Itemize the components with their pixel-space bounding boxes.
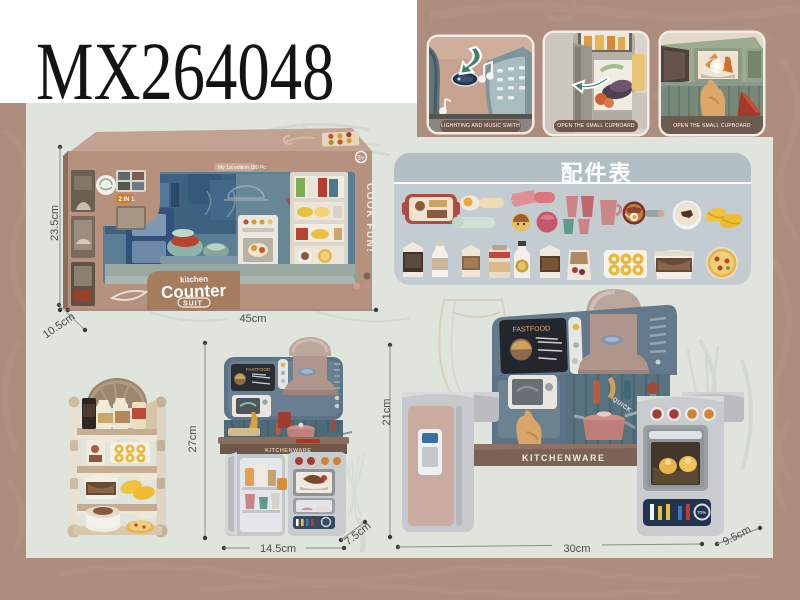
svg-text:KITCHENWARE: KITCHENWARE <box>522 453 606 463</box>
svg-text:FASTFOOD: FASTFOOD <box>512 325 550 333</box>
svg-text:3+: 3+ <box>357 155 365 162</box>
svg-text:FASTFOOD: FASTFOOD <box>246 367 271 372</box>
svg-text:My 1st edition 180 Pc: My 1st edition 180 Pc <box>218 165 266 171</box>
svg-text:2 IN 1: 2 IN 1 <box>119 197 136 203</box>
svg-text:COOK FUN!: COOK FUN! <box>364 183 375 253</box>
svg-text:70%: 70% <box>697 510 706 515</box>
svg-text:Counter: Counter <box>161 281 227 302</box>
